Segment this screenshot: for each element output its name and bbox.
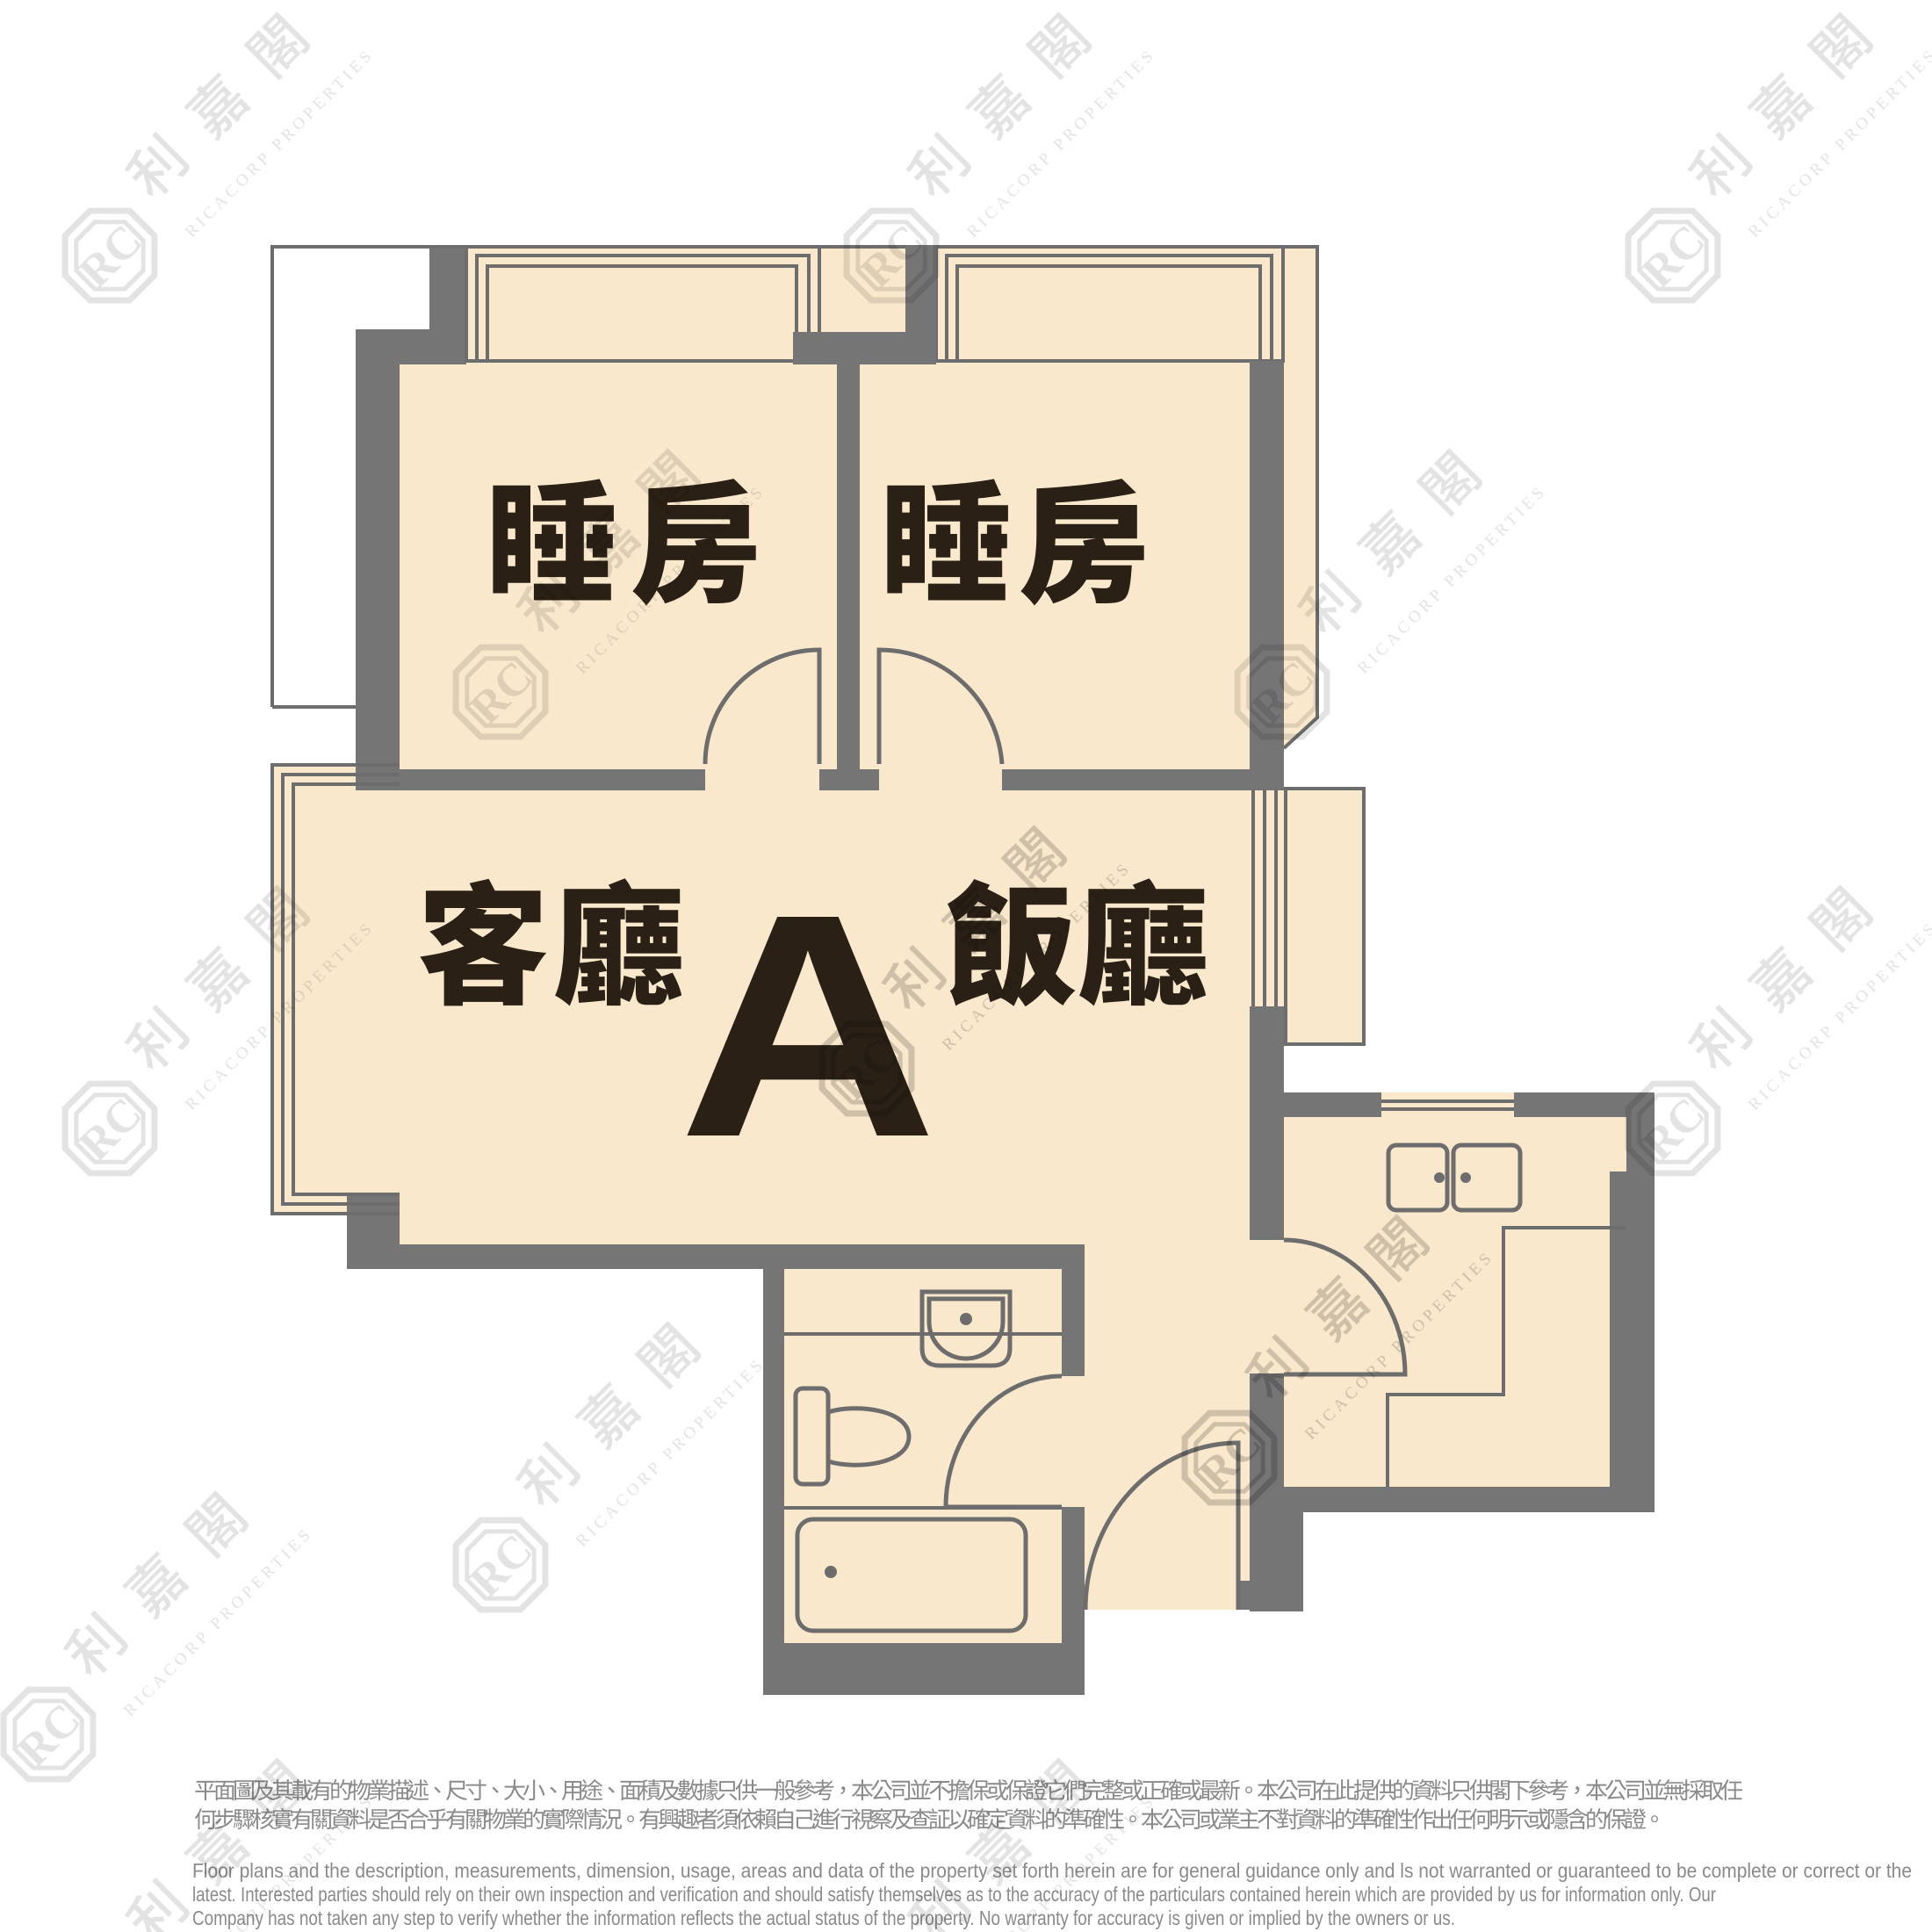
- svg-text:A: A: [678, 847, 937, 1203]
- svg-text:Company has not taken any step: Company has not taken any step to verify…: [192, 1907, 1455, 1929]
- svg-text:latest. Interested parties sho: latest. Interested parties should rely o…: [192, 1883, 1716, 1906]
- svg-text:Floor plans and the descriptio: Floor plans and the description, measure…: [192, 1859, 1912, 1882]
